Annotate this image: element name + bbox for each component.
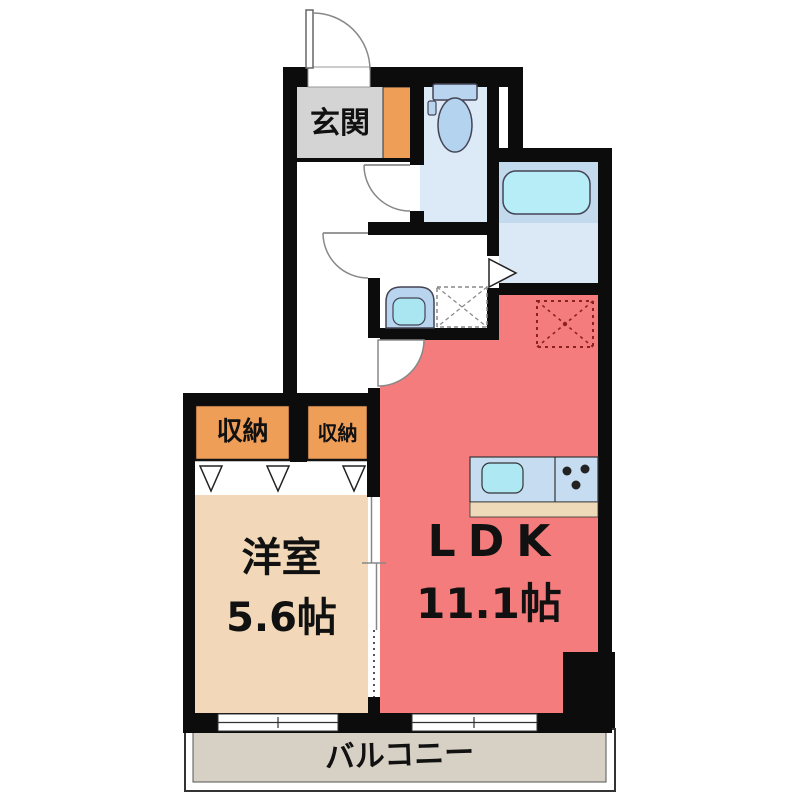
wall-toilet-left-upper [410,75,424,165]
ldk-room-name: LDK [416,518,563,566]
shoe-cabinet [383,87,411,160]
closet-left-label: 収納 [195,405,290,460]
wall-washroom-bottom [368,328,498,340]
wall-right-top [508,67,523,162]
wall-bath-bottom [487,283,612,295]
pillar [563,652,615,728]
wall-western-ldk-upper [367,402,380,497]
wall-right-outer [598,148,612,730]
wall-closet-separator [290,402,307,462]
western-room-area: 5.6帖 [226,596,337,640]
floor-plan: 玄関 収納 収納 洋室 5.6帖 LDK 11.1帖 バルコニー [0,0,800,800]
genkan-room-label: 玄関 [297,87,383,160]
entrance-sill [308,67,370,87]
wall-bath-top [499,148,612,162]
entrance-door-leaf [306,10,313,68]
wall-toilet-bath-left [487,87,499,340]
washroom-door-icon [323,233,368,278]
window-icon [218,714,338,731]
wall-washroom-left-stub [368,222,380,233]
ldk-room-label: LDK 11.1帖 [380,500,598,645]
kitchen-sink-icon [482,463,523,493]
entrance-door-icon [313,13,370,70]
open-section [368,630,380,697]
western-room-label: 洋室 5.6帖 [195,518,368,658]
wall-closet-top [183,393,380,405]
bathtub-icon [503,171,590,214]
washbasin-icon [386,287,434,328]
washing-machine-space-icon [437,287,487,327]
ldk-room-area: 11.1帖 [416,581,562,627]
floor-plan-drawing [0,0,800,800]
closet-right-label: 収納 [307,405,368,460]
wall-left-lower [183,393,195,733]
wall-left-upper [283,67,297,405]
wall-washroom-top [368,222,499,235]
toilet-door-icon [364,165,410,211]
western-room-name: 洋室 [242,536,322,580]
